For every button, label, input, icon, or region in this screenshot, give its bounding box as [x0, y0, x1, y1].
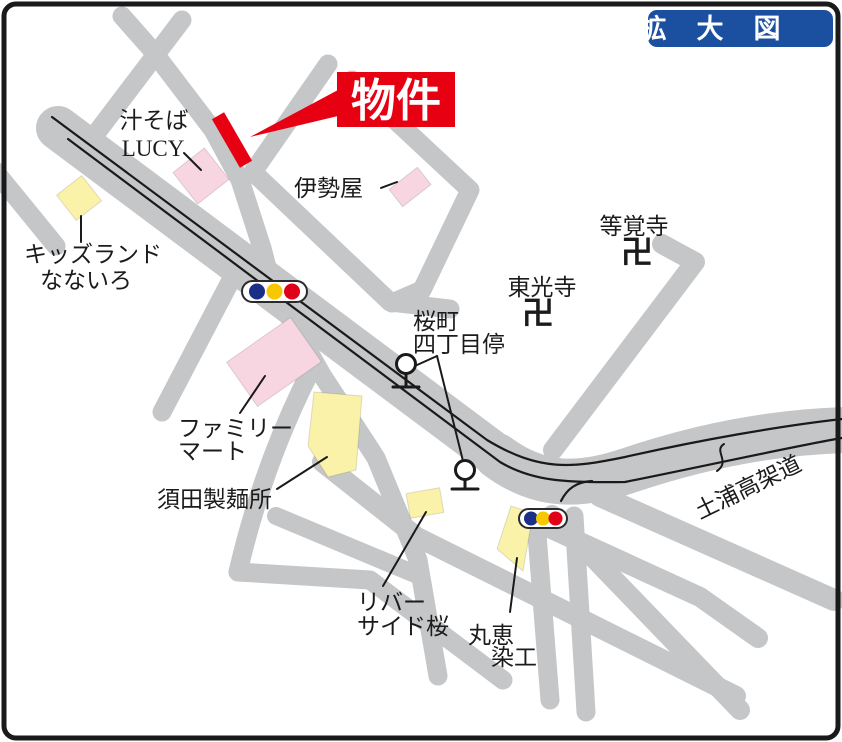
road-branch-southwest	[162, 282, 230, 412]
signal-yellow-icon	[267, 284, 283, 300]
label-suda: 須田製麺所	[157, 487, 272, 512]
label-iseya: 伊勢屋	[294, 176, 363, 201]
road-familymart-west	[238, 376, 308, 572]
signal-blue-icon	[524, 512, 538, 526]
label-lucy-line1: 汁そば	[120, 108, 189, 133]
map-canvas: 物件 汁そば LUCY キッズラ	[0, 0, 842, 742]
label-lucy-line2: LUCY	[122, 136, 185, 161]
traffic-light-1	[242, 281, 307, 302]
label-familymart-line1: ファミリー	[178, 416, 293, 441]
label-kidsland-line1: キッズランド	[24, 242, 162, 267]
bus-stop-icon	[456, 461, 475, 480]
signal-red-icon	[284, 284, 300, 300]
temple-icon-tokoji: 卍	[522, 295, 554, 331]
property-banner-label: 物件	[351, 75, 441, 126]
access-map: 物件 汁そば LUCY キッズラ	[0, 0, 842, 742]
label-familymart-line2: マート	[178, 439, 247, 464]
bus-stop-icon	[397, 355, 416, 374]
signal-red-icon	[549, 512, 563, 526]
label-riverside-line1: リバー	[357, 590, 426, 615]
signal-yellow-icon	[536, 512, 550, 526]
label-busstop-line1: 桜町	[413, 309, 459, 334]
badge-label: 拡大図	[640, 14, 811, 44]
label-busstop-line2: 四丁目停	[413, 332, 505, 357]
road-south-vertical-1	[536, 522, 550, 700]
enlarged-map-badge: 拡大図	[640, 10, 834, 47]
building-iseya	[389, 167, 431, 207]
label-marue-line2: 染工	[491, 645, 537, 670]
road-south-vertical-2	[574, 516, 586, 712]
label-riverside-line2: サイド桜	[357, 614, 449, 639]
label-kidsland-line2: なないろ	[40, 268, 132, 293]
bus-stop-symbol-2	[452, 461, 478, 490]
temple-icon-tokakuji: 卍	[621, 234, 653, 270]
traffic-light-2	[519, 509, 567, 528]
leader-busstop-1	[417, 356, 437, 365]
signal-blue-icon	[249, 284, 265, 300]
road-stub-west	[0, 170, 56, 246]
leader-suda	[277, 457, 327, 489]
